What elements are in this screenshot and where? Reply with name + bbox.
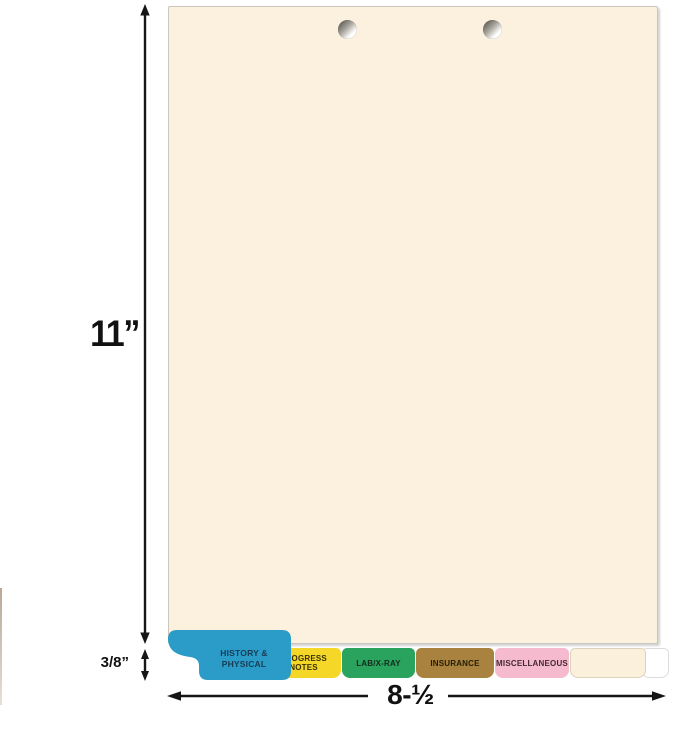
height-arrow xyxy=(140,4,149,644)
adjacent-image-edge xyxy=(0,588,2,705)
tab-label-line2: PHYSICAL xyxy=(196,659,292,670)
punch-hole-right xyxy=(483,20,502,39)
tab-history-physical-label: HISTORY & PHYSICAL xyxy=(196,648,292,670)
tab-height-dimension-label: 3/8” xyxy=(58,655,129,671)
tab-miscellaneous: MISCELLANEOUS xyxy=(495,648,569,678)
tab-height-arrow xyxy=(141,649,149,681)
height-dimension-label: 11” xyxy=(74,315,139,352)
punch-hole-left xyxy=(338,20,357,39)
tab-blank-manila xyxy=(570,648,646,678)
divider-product-diagram: HISTORY & PHYSICAL PROGRESS NOTES LAB/X-… xyxy=(0,0,679,746)
tab-insurance: INSURANCE xyxy=(416,648,494,678)
width-dimension-label: 8-½ xyxy=(363,680,458,710)
tab-label-line1: HISTORY & xyxy=(196,648,292,659)
tab-lab-xray: LAB/X-RAY xyxy=(342,648,415,678)
divider-sheet xyxy=(168,6,658,644)
